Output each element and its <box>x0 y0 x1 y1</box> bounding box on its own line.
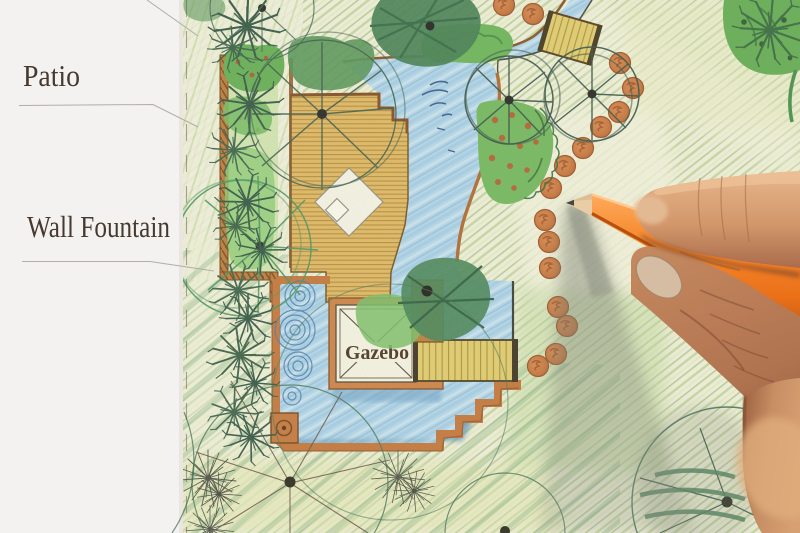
svg-text:Patio: Patio <box>23 58 80 93</box>
svg-text:Wall Fountain: Wall Fountain <box>27 209 170 244</box>
